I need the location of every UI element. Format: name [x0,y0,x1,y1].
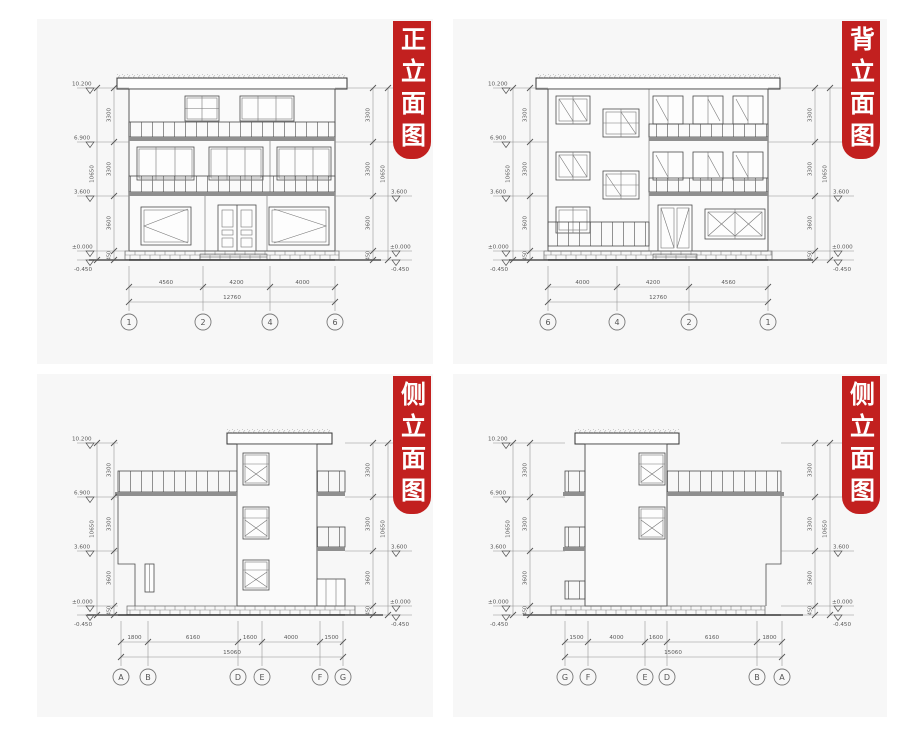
roof-hatch [117,74,347,78]
svg-text:10.200: 10.200 [72,82,92,88]
svg-text:4: 4 [267,318,272,327]
svg-text:1500: 1500 [324,635,339,641]
building-back [509,74,813,260]
svg-text:3300: 3300 [366,516,372,531]
left-wall-outline [118,496,135,606]
balcony-slab [563,492,585,496]
svg-text:A: A [118,673,124,682]
banner-label: 正立面图 [400,26,425,154]
svg-text:450: 450 [366,251,372,260]
svg-text:10.200: 10.200 [488,437,508,443]
banner-label: 侧立面图 [400,381,425,509]
banner-label: 侧立面图 [849,381,874,509]
svg-text:-0.450: -0.450 [833,622,851,628]
svg-text:3.600: 3.600 [74,545,90,551]
svg-text:-0.450: -0.450 [490,267,508,273]
balcony-railing [129,176,335,192]
svg-text:6: 6 [332,318,337,327]
svg-text:1800: 1800 [762,635,777,641]
svg-text:-0.450: -0.450 [74,267,92,273]
svg-text:15060: 15060 [223,650,241,656]
entry-door [218,205,256,251]
svg-text:E: E [259,673,264,682]
level-marker: 3.600 ±0.000 -0.450 [832,190,853,274]
left-dimension-column: 10.200 6.900 3.600 ±0.000 -0.450 3300 33… [72,82,129,274]
svg-text:3600: 3600 [107,570,113,585]
svg-text:6160: 6160 [186,635,201,641]
svg-text:10650: 10650 [381,520,387,538]
balcony-railing [565,527,585,547]
svg-text:15060: 15060 [664,650,682,656]
plinth [551,606,765,615]
bottom-dimension-row: 4560 4200 4000 12760 1 2 4 6 [121,266,343,330]
svg-text:3600: 3600 [366,215,372,230]
svg-text:3300: 3300 [366,462,372,477]
roof-slab [117,78,347,89]
svg-text:B: B [145,673,151,682]
balcony-slab [317,492,345,496]
svg-text:2: 2 [686,318,691,327]
roof-deck-railing [118,471,237,492]
svg-text:4000: 4000 [609,635,624,641]
svg-text:3600: 3600 [523,215,529,230]
svg-text:3600: 3600 [808,215,814,230]
svg-text:10650: 10650 [823,165,829,183]
lower-balcony [317,579,345,606]
plinth [127,606,355,615]
bottom-dimension-row: 4000 4200 4560 12760 6 4 2 1 [540,266,776,330]
svg-text:1600: 1600 [649,635,664,641]
svg-text:4200: 4200 [229,280,244,286]
panel-front-elevation: 10.200 6.900 3.600 ±0.000 -0.450 3300 33… [37,19,433,364]
front-elevation-banner: 正立面图 [393,21,431,159]
panel-side-elevation-b: 10.200 6.900 3.600 ±0.000 -0.450 3300 33… [453,374,887,717]
svg-text:3300: 3300 [366,161,372,176]
svg-text:±0.000: ±0.000 [488,245,509,251]
window [243,453,269,590]
axis-bubble: 1 2 4 6 [121,314,343,330]
svg-text:3600: 3600 [808,570,814,585]
balcony-slab [563,547,585,551]
svg-text:3.600: 3.600 [490,545,506,551]
left-dimension-column: 10.200 6.900 3.600 ±0.000 -0.450 3300 33… [488,82,548,274]
svg-text:10650: 10650 [506,520,512,538]
svg-text:4560: 4560 [159,280,174,286]
roof-slab [536,78,780,89]
svg-text:3300: 3300 [107,462,113,477]
panel-side-elevation-a: 10.200 6.900 3.600 ±0.000 -0.450 3300 33… [37,374,433,717]
svg-text:3300: 3300 [808,516,814,531]
balcony-slab [317,547,345,551]
svg-text:±0.000: ±0.000 [488,600,509,606]
svg-text:3.600: 3.600 [833,545,849,551]
elevation-drawings-sheet: 10.200 6.900 3.600 ±0.000 -0.450 3300 33… [0,0,910,733]
floor-slab [649,137,768,141]
svg-text:6.900: 6.900 [490,136,506,142]
svg-text:3300: 3300 [523,516,529,531]
side-elevation-b-drawing: 10.200 6.900 3.600 ±0.000 -0.450 3300 33… [453,374,887,717]
svg-text:6.900: 6.900 [74,491,90,497]
porch-railing [548,222,649,246]
side-elevation-a-drawing: 10.200 6.900 3.600 ±0.000 -0.450 3300 33… [37,374,433,717]
svg-text:±0.000: ±0.000 [72,600,93,606]
svg-text:450: 450 [107,606,113,615]
svg-text:6160: 6160 [705,635,720,641]
balcony-railing [649,124,768,137]
left-dimension-column: 10.200 6.900 3.600 ±0.000 -0.450 3300 33… [488,437,565,629]
side-elevation-b-banner: 侧立面图 [842,376,880,514]
svg-text:10.200: 10.200 [72,437,92,443]
svg-text:-0.450: -0.450 [391,267,409,273]
plinth [125,251,339,260]
building-side-a [87,429,383,615]
svg-text:F: F [318,673,323,682]
roof-hatch [536,74,780,78]
svg-text:±0.000: ±0.000 [72,245,93,251]
axis-bubble: A B D E F G [113,669,351,685]
svg-text:6.900: 6.900 [490,491,506,497]
svg-text:1600: 1600 [243,635,258,641]
roof-hatch [575,429,679,433]
svg-text:450: 450 [523,251,529,260]
svg-text:450: 450 [808,606,814,615]
svg-text:-0.450: -0.450 [74,622,92,628]
svg-text:±0.000: ±0.000 [832,600,853,606]
svg-text:1800: 1800 [127,635,142,641]
svg-text:1: 1 [765,318,770,327]
svg-text:3300: 3300 [107,107,113,122]
building-side-b [523,429,803,615]
floor-slab [129,192,335,196]
lower-balcony [565,581,585,599]
balcony-railing [317,471,345,492]
svg-text:3300: 3300 [808,161,814,176]
svg-text:450: 450 [107,251,113,260]
svg-text:3.600: 3.600 [833,190,849,196]
right-wall-outline [766,496,781,606]
roof-slab [227,433,332,444]
svg-text:3300: 3300 [808,462,814,477]
svg-text:3300: 3300 [107,516,113,531]
svg-text:3.600: 3.600 [391,545,407,551]
back-elevation-drawing: 10.200 6.900 3.600 ±0.000 -0.450 3300 33… [453,19,887,364]
svg-text:1: 1 [126,318,131,327]
svg-text:3.600: 3.600 [391,190,407,196]
bottom-dimension-row: 1500 4000 1600 6160 1800 15060 G F E D B… [557,621,790,685]
svg-text:4000: 4000 [284,635,299,641]
svg-text:3300: 3300 [523,107,529,122]
balcony-railing [649,178,768,192]
svg-text:10650: 10650 [506,165,512,183]
svg-text:450: 450 [366,606,372,615]
axis-bubble: G F E D B A [557,669,790,685]
level-marker: 3.600 ±0.000 -0.450 [390,190,411,274]
svg-text:3600: 3600 [107,215,113,230]
svg-text:4560: 4560 [721,280,736,286]
roof-slab [575,433,679,444]
svg-text:B: B [754,673,760,682]
floor-slab [129,137,335,141]
svg-text:3.600: 3.600 [74,190,90,196]
svg-text:6: 6 [545,318,550,327]
svg-text:3300: 3300 [523,161,529,176]
svg-text:1500: 1500 [569,635,584,641]
svg-text:10650: 10650 [90,165,96,183]
svg-text:450: 450 [523,606,529,615]
svg-text:G: G [340,673,346,682]
balcony-railing [317,527,345,547]
svg-text:E: E [642,673,647,682]
svg-text:A: A [779,673,785,682]
svg-text:10650: 10650 [90,520,96,538]
roof-deck-slab [667,492,784,496]
panel-back-elevation: 10.200 6.900 3.600 ±0.000 -0.450 3300 33… [453,19,887,364]
svg-text:-0.450: -0.450 [490,622,508,628]
svg-text:10.200: 10.200 [488,82,508,88]
svg-text:F: F [586,673,591,682]
floor-slab [649,192,768,196]
back-elevation-banner: 背立面图 [842,21,880,159]
building-front [89,74,381,260]
svg-text:±0.000: ±0.000 [832,245,853,251]
svg-text:10650: 10650 [823,520,829,538]
svg-text:12760: 12760 [649,295,667,301]
level-marker: 3.600 ±0.000 -0.450 [832,545,853,629]
side-elevation-a-banner: 侧立面图 [393,376,431,514]
plinth [544,251,772,260]
roof-deck-railing [667,471,781,492]
level-marker: 3.600 ±0.000 -0.450 [390,545,411,629]
balcony-railing [565,471,585,492]
svg-text:3600: 3600 [523,570,529,585]
svg-text:450: 450 [808,251,814,260]
front-elevation-drawing: 10.200 6.900 3.600 ±0.000 -0.450 3300 33… [37,19,433,364]
svg-text:6.900: 6.900 [74,136,90,142]
svg-text:12760: 12760 [223,295,241,301]
svg-text:2: 2 [200,318,205,327]
balcony-railing [129,122,335,137]
svg-text:4000: 4000 [295,280,310,286]
svg-text:D: D [664,673,670,682]
left-dimension-column: 10.200 6.900 3.600 ±0.000 -0.450 3300 33… [72,437,118,629]
svg-text:±0.000: ±0.000 [390,600,411,606]
axis-bubble: 6 4 2 1 [540,314,776,330]
svg-text:4000: 4000 [575,280,590,286]
svg-text:D: D [235,673,241,682]
entry-door [658,205,692,251]
banner-label: 背立面图 [849,26,874,154]
svg-text:3300: 3300 [366,107,372,122]
svg-text:3600: 3600 [366,570,372,585]
roof-hatch [227,429,332,433]
svg-text:4200: 4200 [646,280,661,286]
svg-text:3300: 3300 [808,107,814,122]
svg-text:3300: 3300 [107,161,113,176]
svg-text:3300: 3300 [523,462,529,477]
svg-text:-0.450: -0.450 [391,622,409,628]
svg-text:10650: 10650 [381,165,387,183]
roof-deck-slab [115,492,237,496]
bottom-dimension-row: 1800 6160 1600 4000 1500 15060 A B D E F… [113,621,351,685]
svg-text:4: 4 [614,318,619,327]
svg-text:-0.450: -0.450 [833,267,851,273]
window [137,147,331,180]
svg-text:3.600: 3.600 [490,190,506,196]
svg-text:G: G [562,673,568,682]
svg-text:±0.000: ±0.000 [390,245,411,251]
